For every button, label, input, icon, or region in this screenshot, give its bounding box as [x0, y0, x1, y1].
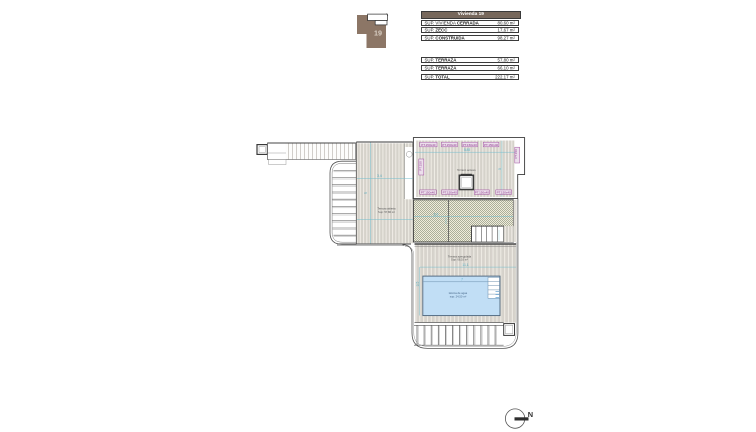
svg-text:5: 5	[364, 192, 368, 194]
svg-text:PT.150x40: PT.150x40	[463, 143, 478, 147]
svg-text:3,4: 3,4	[377, 174, 382, 178]
svg-text:PT.150x40: PT.150x40	[421, 190, 436, 194]
svg-text:3,5: 3,5	[415, 282, 419, 287]
svg-text:PT.150x40: PT.150x40	[442, 143, 457, 147]
svg-text:Sup: 66,10 m²: Sup: 66,10 m²	[451, 258, 468, 262]
svg-text:PT.150x40: PT.150x40	[443, 190, 458, 194]
svg-text:PT.150x40: PT.150x40	[475, 190, 490, 194]
svg-text:Torreón acceso: Torreón acceso	[457, 168, 476, 172]
svg-text:Sup: 57,80 m²: Sup: 57,80 m²	[378, 210, 395, 214]
svg-text:PT.150: PT.150	[418, 161, 422, 171]
svg-text:N: N	[528, 410, 533, 419]
svg-text:PT.150x40: PT.150x40	[421, 143, 436, 147]
svg-text:PT.150x40: PT.150x40	[484, 143, 499, 147]
svg-text:7: 7	[461, 278, 463, 282]
svg-text:PT.150x40: PT.150x40	[497, 190, 512, 194]
svg-text:5: 5	[498, 168, 502, 170]
svg-text:sup: 24,50 m²: sup: 24,50 m²	[450, 295, 467, 299]
svg-text:11,1: 11,1	[462, 263, 468, 267]
svg-text:8,85: 8,85	[464, 148, 471, 152]
svg-text:PT.150: PT.150	[514, 149, 518, 159]
svg-text:6,6: 6,6	[434, 213, 439, 217]
